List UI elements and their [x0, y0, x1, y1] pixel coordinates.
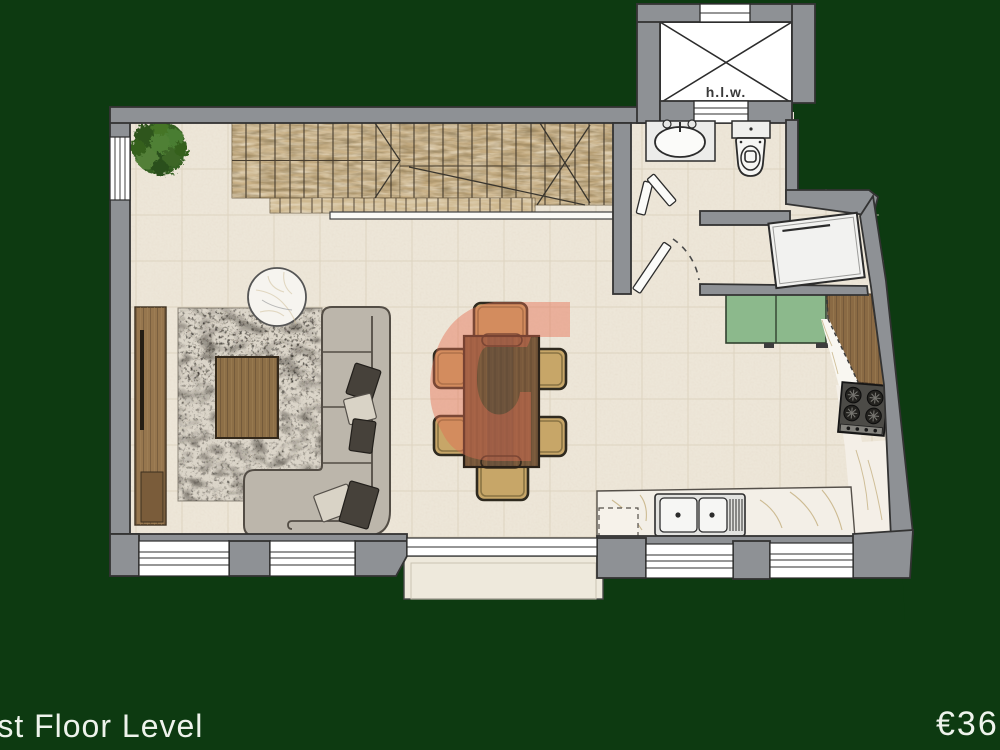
svg-text:€365,000: €365,000 — [936, 705, 1000, 743]
svg-text:h.l.w.: h.l.w. — [706, 84, 746, 100]
svg-text:First Floor Level: First Floor Level — [0, 708, 203, 744]
